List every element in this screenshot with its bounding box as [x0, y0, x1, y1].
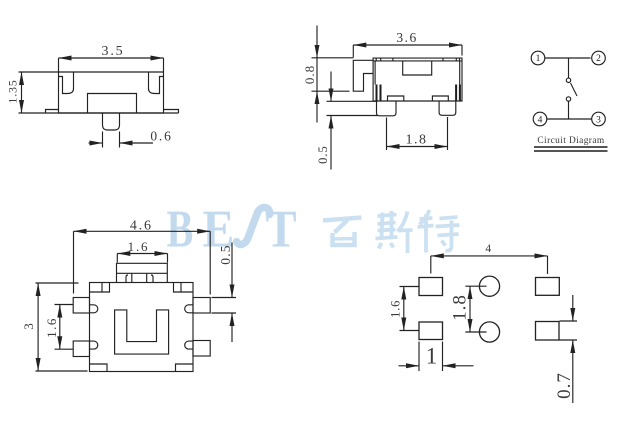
svg-text:Circuit Diagram: Circuit Diagram: [537, 136, 604, 146]
svg-text:4: 4: [485, 243, 491, 255]
svg-text:4.6: 4.6: [130, 219, 153, 234]
svg-text:1: 1: [536, 54, 541, 64]
svg-text:T: T: [266, 200, 297, 258]
svg-text:3: 3: [596, 116, 601, 126]
svg-text:4: 4: [538, 116, 543, 126]
svg-text:1: 1: [426, 344, 438, 369]
svg-text:1.8: 1.8: [406, 133, 428, 148]
svg-text:B: B: [167, 200, 194, 259]
svg-text:1.6: 1.6: [44, 317, 59, 338]
svg-text:3.5: 3.5: [102, 44, 125, 59]
svg-text:1.8: 1.8: [450, 294, 471, 321]
svg-text:1.6: 1.6: [389, 300, 403, 318]
svg-text:0.8: 0.8: [302, 65, 317, 84]
svg-text:0.7: 0.7: [554, 372, 575, 399]
svg-text:0.5: 0.5: [316, 145, 330, 164]
svg-text:1.6: 1.6: [128, 239, 150, 254]
svg-text:3.6: 3.6: [396, 30, 417, 45]
svg-text:0.6: 0.6: [150, 129, 172, 144]
svg-text:3: 3: [21, 323, 36, 330]
svg-text:2: 2: [596, 54, 601, 64]
svg-text:0.5: 0.5: [218, 244, 233, 264]
svg-text:1.35: 1.35: [6, 79, 20, 103]
